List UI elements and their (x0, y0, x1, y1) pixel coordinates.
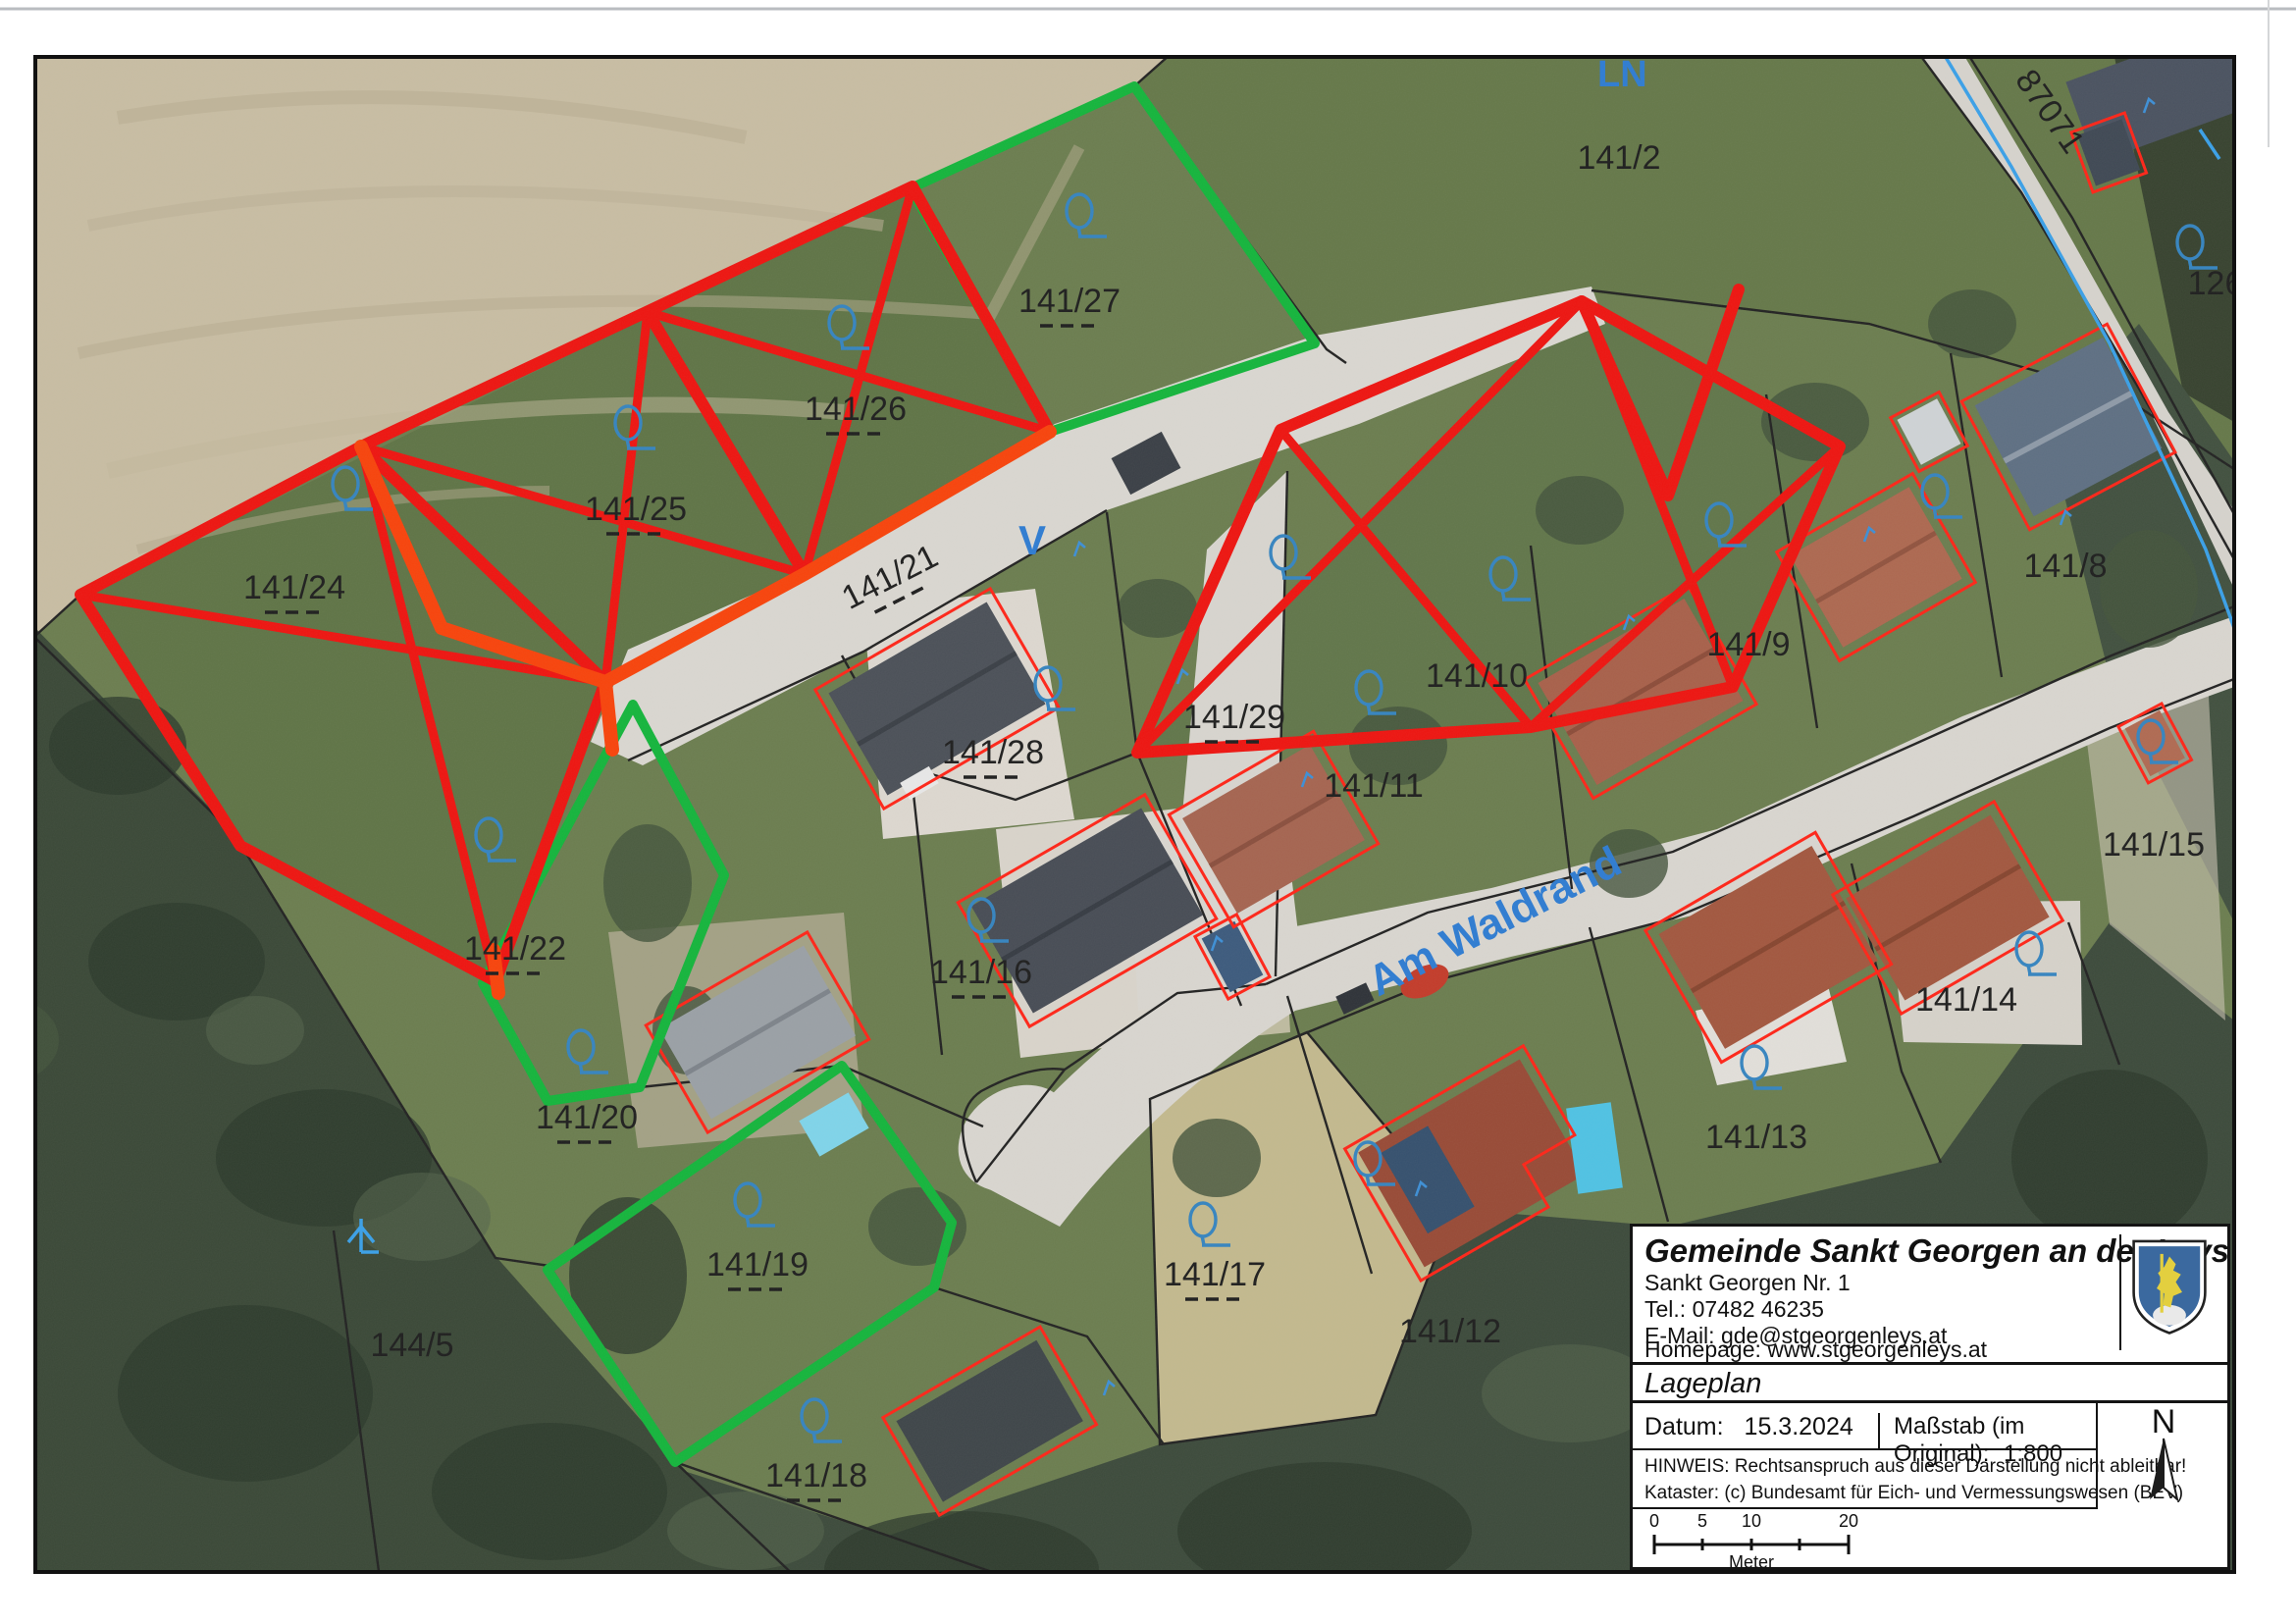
scalebar-tick-20: 20 (1839, 1511, 1858, 1531)
scalebar-tick-10: 10 (1742, 1511, 1761, 1531)
municipality-tel: Tel.: 07482 46235 (1644, 1296, 1824, 1323)
north-arrow-cell: N (2096, 1403, 2230, 1509)
date-field: Datum: 15.3.2024 (1644, 1413, 1853, 1441)
north-arrow: N (2098, 1403, 2230, 1507)
date-value: 15.3.2024 (1745, 1413, 1853, 1440)
scalebar-tick-0: 0 (1649, 1511, 1659, 1531)
scalebar-tick-5: 5 (1697, 1511, 1707, 1531)
title-block-header: Gemeinde Sankt Georgen an der Leys Sankt… (1633, 1227, 2227, 1365)
north-letter: N (2152, 1403, 2176, 1440)
scalebar-unit: Meter (1729, 1552, 1774, 1570)
municipality-address: Sankt Georgen Nr. 1 (1644, 1270, 1851, 1296)
document-title: Lageplan (1644, 1368, 1761, 1400)
date-scale-row: Datum: 15.3.2024 Maßstab (im Original): … (1633, 1403, 2096, 1450)
title-block: Gemeinde Sankt Georgen an der Leys Sankt… (1630, 1224, 2230, 1570)
scanned-lageplan-page: LN V Am Waldrand 87071 141/2141/27141/26… (0, 0, 2296, 1623)
municipality-homepage: Homepage: www.stgeorgenleys.at (1644, 1336, 1987, 1363)
scale-field: Maßstab (im Original): 1:800 (1878, 1413, 2096, 1450)
document-title-row: Lageplan (1633, 1365, 2227, 1403)
notes-row: HINWEIS: Rechtsanspruch aus dieser Darst… (1633, 1450, 2096, 1509)
coat-of-arms-shield (2131, 1234, 2208, 1342)
date-label: Datum: (1644, 1413, 1724, 1440)
scalebar-cell: 0 5 10 20 Meter (1633, 1509, 2227, 1570)
coat-of-arms (2119, 1234, 2218, 1350)
scalebar: 0 5 10 20 Meter (1633, 1509, 1927, 1570)
